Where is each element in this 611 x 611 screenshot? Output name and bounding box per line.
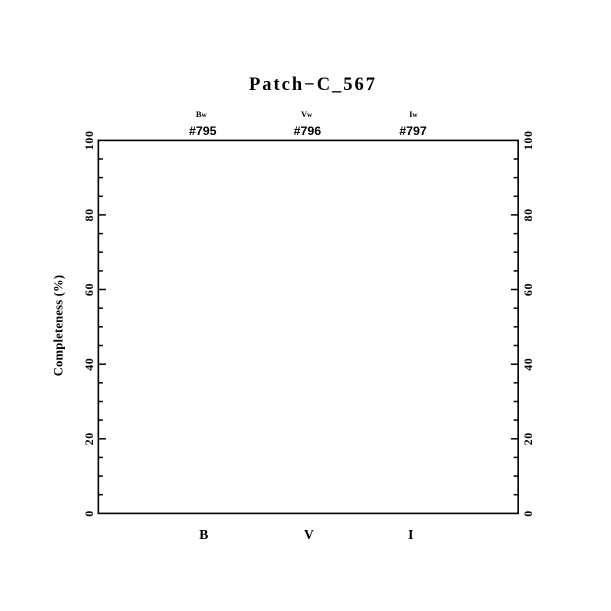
svg-text:0: 0 — [82, 510, 96, 517]
svg-text:60: 60 — [521, 283, 535, 296]
svg-text:0: 0 — [521, 510, 535, 517]
svg-text:#796: #796 — [294, 124, 322, 138]
svg-text:Iw: Iw — [409, 109, 418, 119]
svg-text:100: 100 — [82, 130, 96, 150]
svg-text:Completeness (%): Completeness (%) — [51, 275, 65, 376]
svg-text:20: 20 — [82, 432, 96, 445]
svg-text:I: I — [408, 527, 413, 542]
svg-text:40: 40 — [521, 358, 535, 371]
svg-text:#797: #797 — [399, 124, 427, 138]
svg-text:Patch−C_567: Patch−C_567 — [249, 75, 377, 95]
svg-text:80: 80 — [82, 208, 96, 221]
svg-text:40: 40 — [82, 358, 96, 371]
svg-text:V: V — [304, 527, 314, 542]
svg-text:100: 100 — [521, 130, 535, 150]
svg-text:60: 60 — [82, 283, 96, 296]
svg-text:Vw: Vw — [301, 109, 313, 119]
svg-text:B: B — [199, 527, 208, 542]
svg-text:#795: #795 — [189, 124, 217, 138]
svg-text:80: 80 — [521, 208, 535, 221]
svg-text:Bw: Bw — [196, 109, 208, 119]
svg-text:20: 20 — [521, 432, 535, 445]
